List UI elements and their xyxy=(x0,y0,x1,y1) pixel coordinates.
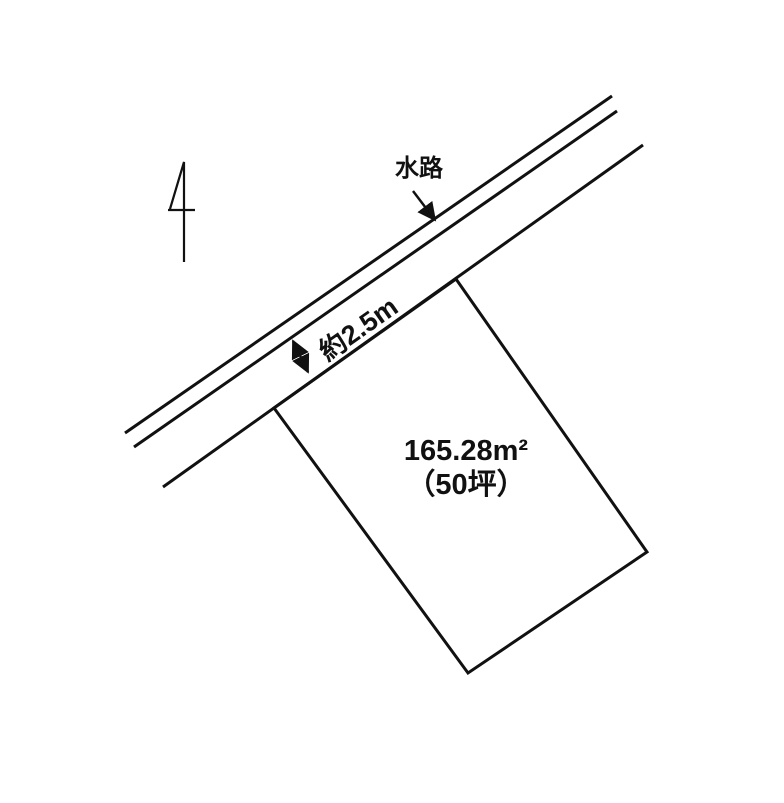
north-arrow-icon xyxy=(168,162,195,262)
width-dimension-arrow xyxy=(293,341,308,372)
site-plan-drawing xyxy=(0,0,784,803)
parcel-area-tsubo: （50坪） xyxy=(404,468,528,502)
land-plot-diagram: 水路 約2.5m 165.28m² （50坪） xyxy=(0,0,784,803)
waterway-label: 水路 xyxy=(395,155,443,183)
waterway-line-far xyxy=(125,96,612,433)
waterway-pointer-arrow xyxy=(413,191,435,220)
parcel-area-label: 165.28m² （50坪） xyxy=(404,434,528,502)
parcel-area-sqm: 165.28m² xyxy=(404,434,528,468)
waterway-line-near xyxy=(134,111,617,447)
